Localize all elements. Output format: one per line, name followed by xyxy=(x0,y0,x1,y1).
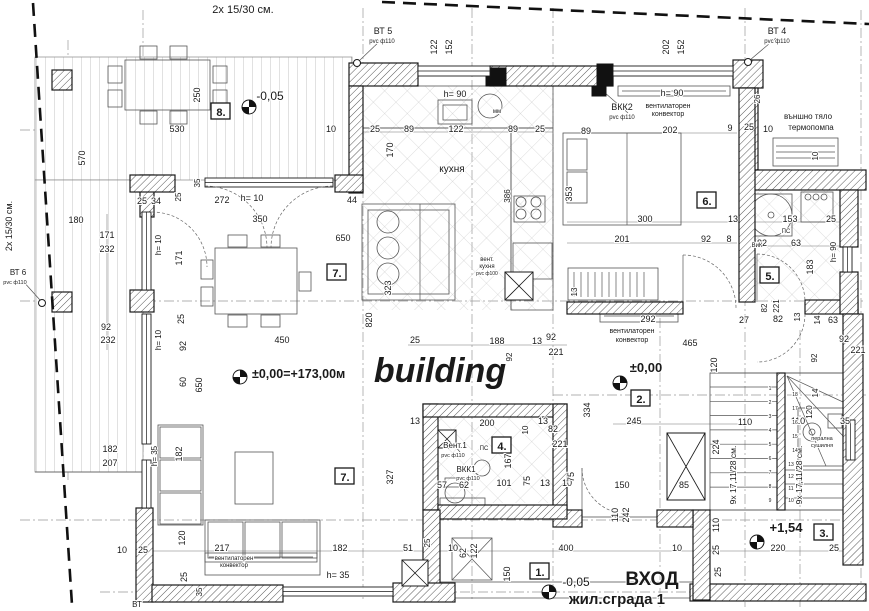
annotation-text: ±0,00=+173,00м xyxy=(252,367,345,381)
annotation-text: перална xyxy=(811,436,833,442)
annotation-text: 122 xyxy=(448,124,463,134)
annotation-text: 272 xyxy=(214,195,229,205)
annotation-text: 13 xyxy=(532,336,542,346)
wall xyxy=(840,272,858,314)
annotation-text: 13 xyxy=(570,287,579,296)
annotation-text: 2x 15/30 см. xyxy=(212,4,273,16)
annotation-text: 92 xyxy=(178,341,188,351)
annotation-text: 62 xyxy=(458,548,468,558)
annotation-text: 82 xyxy=(548,424,558,434)
annotation-text: 122 xyxy=(429,39,439,54)
annotation-text: конвектор xyxy=(616,337,649,344)
column xyxy=(597,64,613,86)
annotation-text: 60 xyxy=(178,377,188,387)
room-number: 3. xyxy=(819,528,828,540)
annotation-text: 92 xyxy=(546,332,556,342)
annotation-text: 350 xyxy=(252,214,267,224)
annotation-text: 323 xyxy=(383,280,393,295)
annotation-text: 26 xyxy=(753,94,762,103)
wall xyxy=(438,505,567,519)
roof-overhang-line xyxy=(382,2,869,24)
annotation-text: pvc ф110 xyxy=(764,39,790,45)
annotation-text: 353 xyxy=(564,186,574,201)
annotation-text: 167 xyxy=(503,453,513,468)
annotation-text: кухня xyxy=(479,264,494,270)
annotation-text: 10 xyxy=(448,543,458,553)
annotation-text: 120 xyxy=(805,405,814,419)
annotation-text: 650 xyxy=(194,377,204,392)
annotation-text: вентилаторен xyxy=(645,103,690,110)
annotation-text: вентилаторен xyxy=(215,556,254,562)
annotation-text: 92 xyxy=(101,322,111,332)
annotation-text: 25 xyxy=(370,124,380,134)
annotation-text: ВТ 5 xyxy=(374,26,392,36)
annotation-text: 8 xyxy=(769,484,772,490)
room-number: 8. xyxy=(216,107,225,119)
annotation-text: 221 xyxy=(772,299,781,313)
level-marker-quadrant xyxy=(240,370,247,377)
wall xyxy=(567,302,683,314)
level-marker-quadrant xyxy=(549,585,556,592)
annotation-text: h= 35 xyxy=(327,570,350,580)
annotation-text: 152 xyxy=(444,39,454,54)
furniture-rect xyxy=(228,315,247,327)
watermark-text: building xyxy=(374,352,506,390)
wall xyxy=(840,190,858,247)
annotation-text: 101 xyxy=(496,478,511,488)
column xyxy=(592,86,606,96)
annotation-text: 220 xyxy=(770,543,785,553)
level-marker-quadrant xyxy=(613,383,620,390)
annotation-text: h= 90 xyxy=(661,88,684,98)
annotation-text: 11 xyxy=(788,486,793,492)
annotation-text: 201 xyxy=(614,234,629,244)
annotation-text: 292 xyxy=(640,314,655,324)
annotation-text: pvc ф110 xyxy=(441,453,464,459)
room-number: 5. xyxy=(765,271,774,283)
annotation-text: h= 90 xyxy=(829,241,838,262)
watermark: building xyxy=(374,352,506,390)
annotation-text: 57 xyxy=(437,480,447,490)
annotation-text: 35 xyxy=(195,587,204,596)
wall xyxy=(349,63,418,86)
annotation-text: 92 xyxy=(701,234,711,244)
annotation-text: външно тяло xyxy=(784,112,833,121)
annotation-text: 9x 17,11/28 см. xyxy=(794,446,804,505)
furniture-rect xyxy=(261,315,280,327)
annotation-text: 14 xyxy=(811,388,820,397)
annotation-text: 386 xyxy=(503,189,512,203)
deck-area xyxy=(35,180,143,472)
annotation-text: 13 xyxy=(538,416,548,426)
annotation-text: 25 xyxy=(138,545,148,555)
annotation-text: 183 xyxy=(805,259,815,274)
annotation-text: 13 xyxy=(788,462,794,468)
annotation-text: pvc ф110 xyxy=(3,280,26,286)
room-number: 2. xyxy=(636,394,645,406)
wall xyxy=(553,404,567,510)
wall xyxy=(777,373,785,510)
annotation-text: 110 xyxy=(738,417,752,427)
annotation-text: 82 xyxy=(760,303,769,312)
wall xyxy=(152,585,283,602)
door-swing-arc xyxy=(683,255,736,308)
wall xyxy=(52,70,72,90)
room-number: 6. xyxy=(702,196,711,208)
annotation-text: вентилаторен xyxy=(609,328,654,335)
annotation-text: ВТ 4 xyxy=(768,26,786,36)
annotation-text: 10 xyxy=(811,151,820,160)
annotation-text: 202 xyxy=(662,125,677,135)
annotation-text: 221 xyxy=(850,345,865,355)
furniture-rect xyxy=(245,522,280,558)
annotation-text: 110 xyxy=(711,518,721,532)
annotation-text: 25 xyxy=(179,572,189,582)
annotation-text: 89 xyxy=(581,126,591,136)
annotation-text: 89 xyxy=(508,124,518,134)
annotation-text: 92 xyxy=(839,334,849,344)
annotation-text: мм xyxy=(493,109,501,115)
annotation-text: 6 xyxy=(769,456,772,462)
annotation-text: конвектор xyxy=(220,563,249,569)
annotation-text: 14 xyxy=(813,315,822,324)
annotation-text: сушилня xyxy=(811,443,833,449)
annotation-text: 89 xyxy=(404,124,414,134)
wall xyxy=(52,292,72,312)
door-swing-arc xyxy=(582,468,628,514)
annotation-text: 221 xyxy=(548,347,563,357)
vent-terminal-point xyxy=(39,300,46,307)
annotation-text: h= 35 xyxy=(150,445,159,466)
annotation-text: 245 xyxy=(626,416,641,426)
annotation-text: 180 xyxy=(68,215,83,225)
annotation-text: 10 xyxy=(117,545,127,555)
annotation-text: 15 xyxy=(792,434,798,440)
annotation-text: 200 xyxy=(479,418,494,428)
annotation-text: 10 xyxy=(326,124,336,134)
wall xyxy=(693,510,710,600)
wall xyxy=(335,175,363,192)
annotation-text: 27 xyxy=(739,315,749,325)
wall xyxy=(657,510,693,527)
annotation-text: 8 xyxy=(726,234,731,244)
annotation-text: 2 xyxy=(769,400,772,406)
annotation-text: 170 xyxy=(385,142,395,157)
annotation-text: 18 xyxy=(792,392,798,398)
annotation-text: ВКК2 xyxy=(611,102,633,112)
furniture-rect xyxy=(158,425,203,525)
annotation-text: 13 xyxy=(410,416,420,426)
furniture-rect xyxy=(201,287,213,306)
annotation-text: 150 xyxy=(614,480,629,490)
annotation-text: -0,05 xyxy=(256,89,284,103)
annotation-text: 35 xyxy=(193,178,202,187)
annotation-text: ПС xyxy=(480,446,489,452)
furniture-rect xyxy=(160,493,201,524)
annotation-text: 25 xyxy=(744,122,754,132)
furniture-rect xyxy=(282,522,317,558)
wall xyxy=(136,508,153,602)
annotation-text: 120 xyxy=(177,530,187,545)
annotation-text: 400 xyxy=(558,543,573,553)
annotation-text: ВТ xyxy=(132,600,142,609)
annotation-text: 152 xyxy=(676,39,686,54)
annotation-text: 10 xyxy=(788,498,794,504)
annotation-text: 63 xyxy=(791,238,801,248)
annotation-text: 92 xyxy=(505,352,514,361)
furniture-rect xyxy=(563,133,681,225)
furniture-rect xyxy=(261,235,280,247)
annotation-text: 465 xyxy=(682,338,697,348)
wall xyxy=(741,170,866,190)
annotation-text: 202 xyxy=(661,39,671,54)
wall xyxy=(739,88,755,302)
annotation-text: 25 xyxy=(410,335,420,345)
floor-plan: building 8.7.7.6.5.4.3.2.1. 2x 15/30 см.… xyxy=(0,0,869,611)
annotation-text: конвектор xyxy=(652,111,685,118)
annotation-text: 182 xyxy=(332,543,347,553)
wall xyxy=(490,66,613,86)
annotation-text: 25 xyxy=(535,124,545,134)
vent-terminal-point xyxy=(745,59,752,66)
annotation-text: 13 xyxy=(793,312,802,321)
annotation-text: 221 xyxy=(552,439,567,449)
annotation-text: ВХОД xyxy=(625,569,679,590)
annotation-text: +1,54 xyxy=(770,520,804,535)
annotation-text: 75 xyxy=(566,472,576,482)
wall xyxy=(423,404,438,510)
annotation-text: 9 xyxy=(727,123,732,133)
room-number: 7. xyxy=(332,268,341,280)
annotation-text: 25 xyxy=(423,538,432,547)
annotation-text: 34 xyxy=(151,196,161,206)
annotation-text: 82 xyxy=(773,314,783,324)
room-number: 4. xyxy=(497,441,506,453)
annotation-text: 12 xyxy=(788,474,794,480)
annotation-text: 44 xyxy=(347,195,357,205)
annotation-text: 188 xyxy=(489,336,504,346)
annotation-text: pvc ф110 xyxy=(369,39,395,45)
annotation-text: 224 xyxy=(711,439,721,454)
annotation-text: 14 xyxy=(792,448,798,454)
furniture-rect xyxy=(215,248,297,314)
annotation-text: 650 xyxy=(335,233,350,243)
annotation-text: h= 90 xyxy=(444,89,467,99)
furniture-rect xyxy=(299,272,311,291)
annotation-text: 92 xyxy=(810,353,819,362)
annotation-text: 25 xyxy=(711,545,721,555)
level-marker-quadrant xyxy=(750,542,757,549)
level-marker-quadrant xyxy=(620,376,627,383)
level-marker-quadrant xyxy=(233,377,240,384)
annotation-text: -0,05 xyxy=(562,575,590,589)
annotation-text: 10 xyxy=(521,425,530,434)
annotation-text: 2x 15/30 см. xyxy=(4,201,14,251)
annotation-text: 9 xyxy=(769,498,772,504)
annotation-text: термопомпа xyxy=(788,123,834,132)
wall xyxy=(690,584,866,601)
annotation-text: 327 xyxy=(385,469,395,484)
annotation-text: 25 xyxy=(713,567,723,577)
annotation-text: pvc ф110 xyxy=(609,115,635,121)
annotation-text: 16 xyxy=(792,420,798,426)
annotation-text: 13 xyxy=(728,214,738,224)
annotation-text: кухня xyxy=(439,164,464,175)
annotation-text: 9x 17,11/28 см. xyxy=(728,446,738,505)
annotation-text: 171 xyxy=(174,250,184,265)
room-number: 1. xyxy=(535,567,544,579)
annotation-text: 25 xyxy=(174,192,183,201)
annotation-text: 217 xyxy=(214,543,229,553)
annotation-text: 242 xyxy=(621,507,631,522)
annotation-text: 171 xyxy=(99,230,114,240)
annotation-text: 1 xyxy=(769,386,772,392)
annotation-text: 62 xyxy=(459,480,469,490)
annotation-text: 10 xyxy=(763,124,773,134)
furniture-rect xyxy=(568,268,658,300)
vent-terminal-point xyxy=(354,60,361,67)
annotation-text: 153 xyxy=(782,214,797,224)
furniture-rect xyxy=(235,452,273,504)
furniture-rect xyxy=(228,235,247,247)
annotation-text: ВиК xyxy=(752,243,763,249)
annotation-text: 207 xyxy=(102,458,117,468)
annotation-text: 820 xyxy=(364,312,374,327)
annotation-text: h= 10 xyxy=(154,329,163,350)
annotation-text: 7 xyxy=(769,470,772,476)
annotation-text: 5 xyxy=(769,442,772,448)
room-number: 7. xyxy=(340,472,349,484)
annotation-text: жил.сграда 1 xyxy=(568,591,665,608)
annotation-text: 120 xyxy=(709,357,719,372)
floor-plan-svg: building 8.7.7.6.5.4.3.2.1. 2x 15/30 см.… xyxy=(0,0,869,611)
level-marker-quadrant xyxy=(757,535,764,542)
annotation-text: 75 xyxy=(522,476,532,486)
annotation-text: 25 xyxy=(176,314,186,324)
annotation-text: 530 xyxy=(169,124,184,134)
annotation-text: ПС xyxy=(782,229,791,235)
annotation-text: 300 xyxy=(637,214,652,224)
annotation-text: 3 xyxy=(769,414,772,420)
annotation-text: 570 xyxy=(77,150,87,165)
annotation-text: 17 xyxy=(792,406,798,412)
annotation-text: вент. xyxy=(480,257,494,263)
annotation-text: pvc ф100 xyxy=(476,271,498,277)
annotation-text: ±0,00 xyxy=(630,360,662,375)
annotation-text: 35 xyxy=(840,416,850,426)
annotation-text: 334 xyxy=(582,402,592,417)
wall xyxy=(130,175,175,192)
annotation-text: 85 xyxy=(679,480,689,490)
annotation-text: 122 xyxy=(469,543,479,558)
annotation-text: ВКК1 xyxy=(456,465,476,474)
annotation-text: 182 xyxy=(174,446,184,461)
furniture-rect xyxy=(567,139,587,170)
annotation-text: 4 xyxy=(769,428,772,434)
annotation-text: 25 xyxy=(137,196,147,206)
wall xyxy=(130,290,154,312)
annotation-text: 110 xyxy=(610,508,620,522)
terrace-decking xyxy=(35,57,352,472)
annotation-text: h= 10 xyxy=(241,193,264,203)
annotation-text: 13 xyxy=(540,478,550,488)
annotation-text: 232 xyxy=(100,335,115,345)
annotation-text: 25 xyxy=(826,214,836,224)
annotation-text: Вент.1 xyxy=(443,441,467,450)
annotation-text: 250 xyxy=(192,87,202,102)
annotation-text: 63 xyxy=(828,315,838,325)
annotation-text: 25 xyxy=(829,543,839,553)
furniture-rect xyxy=(160,460,201,491)
annotation-text: 150 xyxy=(502,566,512,581)
annotation-text: 10 xyxy=(672,543,682,553)
annotation-text: h= 10 xyxy=(154,234,163,255)
annotation-text: ВТ 6 xyxy=(10,268,27,277)
annotation-text: 450 xyxy=(274,335,289,345)
annotation-text: 232 xyxy=(99,244,114,254)
annotation-text: 182 xyxy=(102,444,117,454)
annotation-text: 51 xyxy=(403,543,413,553)
